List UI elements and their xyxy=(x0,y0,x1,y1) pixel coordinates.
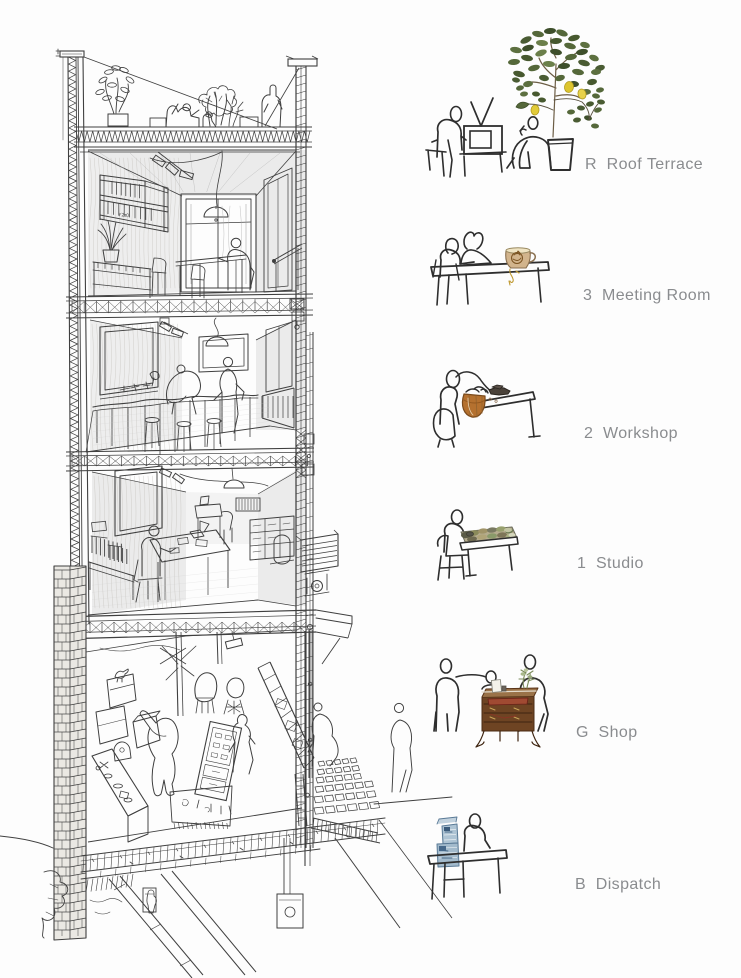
svg-text:B Dispatch: B Dispatch xyxy=(575,876,661,893)
svg-text:G Shop: G Shop xyxy=(576,724,638,741)
svg-text:R Roof Terrace: R Roof Terrace xyxy=(585,156,703,173)
svg-text:Y2τ0: Y2τ0 xyxy=(118,212,130,219)
svg-text:1 Studio: 1 Studio xyxy=(577,555,644,572)
svg-text:3 Meeting Room: 3 Meeting Room xyxy=(583,287,711,304)
svg-text:2 Workshop: 2 Workshop xyxy=(584,425,678,442)
